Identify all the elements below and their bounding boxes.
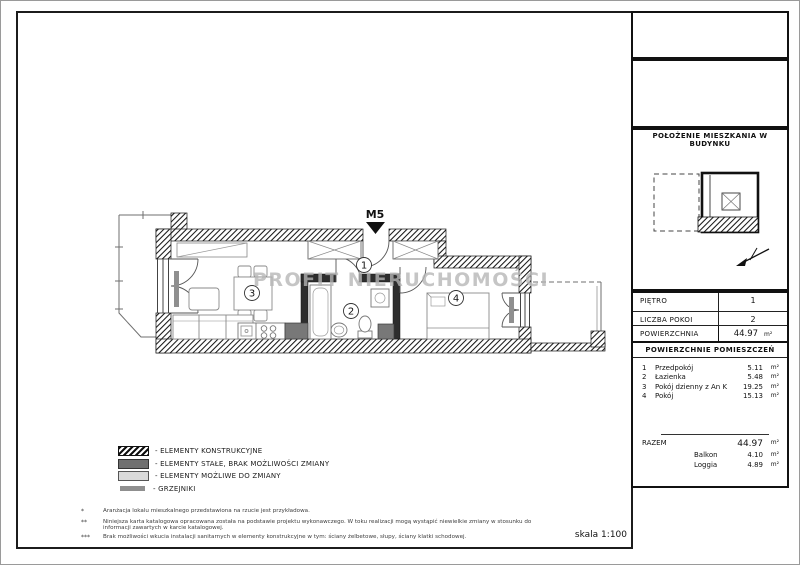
- balcony-row: Balkon 4.10 m²: [633, 449, 787, 459]
- room-areas-title: POWIERZCHNIE POMIESZCZEŃ: [633, 341, 787, 358]
- sidebar-empty-box-middle: [631, 59, 789, 128]
- table-row: LICZBA POKOI 2: [633, 312, 787, 326]
- hatched-swatch-icon: [118, 446, 149, 456]
- rooms-count-label: LICZBA POKOI: [633, 312, 718, 325]
- light-gray-swatch-icon: [118, 471, 149, 481]
- room-area-row: 3 Pokój dzienny z An K 19.25 m²: [633, 381, 787, 391]
- dark-gray-swatch-icon: [118, 459, 149, 469]
- legend: - ELEMENTY KONSTRUKCYJNE - ELEMENTY STAŁ…: [118, 445, 448, 495]
- scale-label: skala 1:100: [541, 530, 627, 540]
- catalog-card-page: POŁOŻENIE MIESZKANIA W BUDYNKU PIĘTRO 1 …: [0, 0, 800, 565]
- sidebar-location-box: [631, 128, 789, 291]
- footnotes: * Aranżacja lokalu mieszkalnego przedsta…: [81, 508, 551, 545]
- area-value: 44.97m²: [718, 326, 787, 341]
- room-areas-list: 1 Przedpokój 5.11 m² 2 Łazienka 5.48 m² …: [633, 358, 787, 400]
- loggia-row: Loggia 4.89 m²: [633, 459, 787, 469]
- sidebar-empty-box-top: [631, 11, 789, 59]
- footnote: *** Brak możliwości wkucia instalacji sa…: [81, 534, 551, 541]
- table-row: POWIERZCHNIA 44.97m²: [633, 326, 787, 341]
- area-label: POWIERZCHNIA: [633, 326, 718, 341]
- room-area-row: 1 Przedpokój 5.11 m²: [633, 362, 787, 372]
- legend-item: - ELEMENTY KONSTRUKCYJNE: [118, 445, 448, 458]
- legend-item: - ELEMENTY STAŁE, BRAK MOŻLIWOŚCI ZMIANY: [118, 458, 448, 471]
- radiator-swatch-icon: [120, 486, 145, 491]
- rooms-count-value: 2: [718, 312, 787, 325]
- table-row: PIĘTRO 1: [633, 293, 787, 312]
- room-area-row: 4 Pokój 15.13 m²: [633, 391, 787, 401]
- location-title: POŁOŻENIE MIESZKANIA W BUDYNKU: [635, 132, 785, 148]
- room-area-row: 2 Łazienka 5.48 m²: [633, 372, 787, 382]
- footnote: ** Niniejsza karta katalogowa opracowana…: [81, 519, 551, 531]
- legend-item: - GRZEJNIKI: [118, 483, 448, 496]
- footnote: * Aranżacja lokalu mieszkalnego przedsta…: [81, 508, 551, 515]
- legend-item: - ELEMENTY MOŻLIWE DO ZMIANY: [118, 470, 448, 483]
- floor-label: PIĘTRO: [633, 293, 718, 311]
- floor-value: 1: [718, 293, 787, 311]
- apartment-info-table: PIĘTRO 1 LICZBA POKOI 2 POWIERZCHNIA 44.…: [631, 291, 789, 488]
- total-row: RAZEM 44.97 m²: [633, 435, 787, 449]
